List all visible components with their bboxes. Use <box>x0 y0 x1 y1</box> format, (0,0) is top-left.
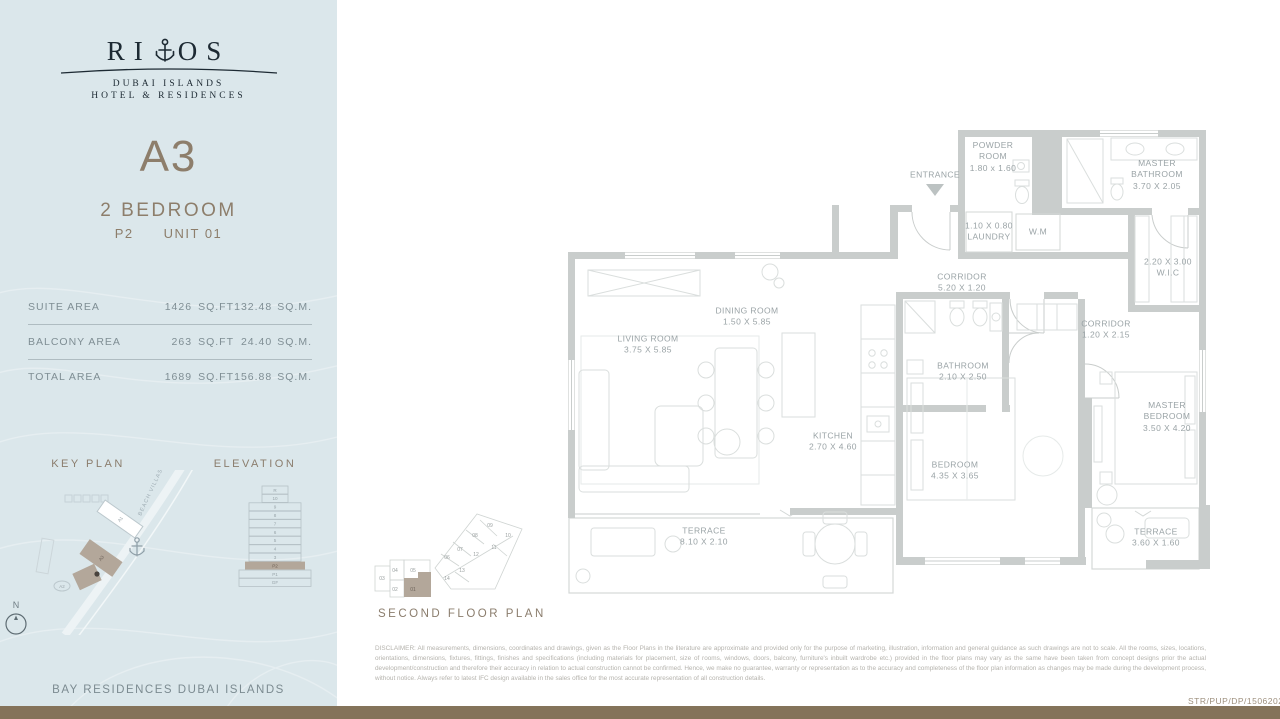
unit-location: P2 UNIT 01 <box>0 226 337 241</box>
brand-tagline-2: HOTEL & RESIDENCES <box>0 91 337 101</box>
mini-unit-label: 08 <box>472 533 478 539</box>
mini-unit-label: 03 <box>379 576 385 582</box>
elevation-floor-label: 8 <box>274 513 277 518</box>
mini-unit-label: 04 <box>392 568 398 574</box>
elevation-floor-label: 6 <box>274 530 277 535</box>
bathroom-fixtures <box>905 301 1002 333</box>
mini-unit-label: 10 <box>505 533 511 539</box>
area-sqft-unit: SQ.FT <box>198 336 234 348</box>
elevation-floor-label: P1 <box>272 572 278 577</box>
mini-unit-label: 01 <box>410 587 416 593</box>
wordmark-right: OS <box>178 36 231 67</box>
floor-plan: ENTRANCE POWDER ROOM 1.80 x 1.60 MASTER … <box>555 120 1215 610</box>
room-label-dining-room: DINING ROOM 1.50 X 5.85 <box>716 306 779 329</box>
unit-type: 2 BEDROOM <box>0 200 337 222</box>
elevation-floor-label: 10 <box>272 496 278 501</box>
area-sqm-value: 156.88 <box>234 371 272 383</box>
mini-unit-label: 05 <box>410 568 416 574</box>
key-plan-building-a3-highlighted: A3 <box>72 539 122 590</box>
area-sqm-unit: SQ.M. <box>277 371 312 383</box>
room-label-master-bathroom: MASTER BATHROOM 3.70 X 2.05 <box>1120 158 1194 192</box>
unit-number: UNIT 01 <box>164 226 223 241</box>
room-label-wm: W.M <box>1029 226 1047 237</box>
area-row-total: TOTAL AREA 1689SQ.FT 156.88SQ.M. <box>28 359 312 394</box>
mini-unit-label: 09 <box>487 523 493 529</box>
area-row-suite: SUITE AREA 1426SQ.FT 132.48SQ.M. <box>28 290 312 324</box>
dining-room-furniture <box>698 333 815 458</box>
room-label-terrace-master: TERRACE 3.60 X 1.60 <box>1132 527 1180 550</box>
elevation-floor-label: 3 <box>274 555 277 560</box>
key-plan-building-other <box>36 538 54 574</box>
area-sqft-unit: SQ.FT <box>198 371 234 383</box>
elevation-floor-label: GF <box>272 580 279 585</box>
logo-swoosh-line <box>59 67 279 75</box>
elevation-floor-label: 9 <box>274 505 277 510</box>
terrace-outlines <box>569 508 1199 593</box>
mini-unit-label: 12 <box>473 552 479 558</box>
elevation-title: ELEVATION <box>185 458 325 470</box>
room-label-bedroom: BEDROOM 4.35 X 3.65 <box>931 460 979 483</box>
master-bedroom-furniture <box>1094 372 1197 505</box>
mini-unit-label: 14 <box>444 576 450 582</box>
room-label-living-room: LIVING ROOM 3.75 X 5.85 <box>617 334 678 357</box>
area-sqm-unit: SQ.M. <box>277 301 312 313</box>
area-sqm-unit: SQ.M. <box>277 336 312 348</box>
mini-unit-label: 07 <box>457 547 463 553</box>
room-label-kitchen: KITCHEN 2.70 X 4.60 <box>809 431 857 454</box>
elevation-floor-label: R <box>273 488 277 493</box>
elevation-floor-label: 7 <box>274 521 277 526</box>
elevation-floor-label: 4 <box>274 547 277 552</box>
reference-code: STR/PUP/DP/15062023 <box>1188 696 1280 706</box>
building-a2-label: A2 <box>59 584 65 589</box>
mini-floor-plan: 01 02 03 04 05 06 07 08 09 10 11 12 13 1… <box>373 492 528 602</box>
mini-plan-highlighted-unit <box>404 572 431 597</box>
area-sqm-value: 132.48 <box>234 301 272 313</box>
beach-villas-row <box>65 495 108 502</box>
unit-location-dot <box>94 571 99 576</box>
area-sqft-unit: SQ.FT <box>198 301 234 313</box>
room-label-laundry: 1.10 X 0.80 LAUNDRY <box>965 221 1013 244</box>
brand-wordmark: RI OS <box>0 36 337 67</box>
brand-logo: RI OS DUBAI ISLANDS HOTEL & RESI <box>0 36 337 101</box>
mini-unit-label: 02 <box>392 587 398 593</box>
area-label: TOTAL AREA <box>28 371 148 383</box>
mini-plan-caption: SECOND FLOOR PLAN <box>378 608 546 620</box>
room-label-corridor-master: CORRIDOR 1.20 X 2.15 <box>1081 319 1130 342</box>
room-label-bathroom: BATHROOM 2.10 X 2.50 <box>937 361 989 384</box>
room-label-master-bedroom: MASTER BEDROOM 3.50 X 4.20 <box>1130 400 1204 434</box>
elevation-floor-label-highlighted: P2 <box>272 563 278 568</box>
sidebar: RI OS DUBAI ISLANDS HOTEL & RESI <box>0 0 337 706</box>
terrace-main-furniture <box>576 512 867 588</box>
mini-unit-label: 13 <box>459 568 465 574</box>
project-name: BAY RESIDENCES DUBAI ISLANDS <box>0 684 337 696</box>
north-label: N <box>7 600 25 610</box>
elevation-floor-label: 5 <box>274 538 277 543</box>
room-label-terrace-main: TERRACE 8.10 X 2.10 <box>680 526 728 549</box>
key-plan-title: KEY PLAN <box>18 458 158 470</box>
unit-code: A3 <box>0 132 337 182</box>
north-compass-icon <box>3 611 29 637</box>
area-label: SUITE AREA <box>28 301 148 313</box>
entrance-label: ENTRANCE <box>910 169 960 180</box>
area-sqm-value: 24.40 <box>241 336 272 348</box>
bottom-brown-bar <box>0 706 1280 719</box>
area-sqft-value: 263 <box>172 336 193 348</box>
entrance-arrow-icon <box>926 184 944 196</box>
floor-plan-drawing <box>555 120 1215 610</box>
area-sqft-value: 1426 <box>165 301 192 313</box>
disclaimer-text: DISCLAIMER: All measurements, dimensions… <box>375 644 1206 684</box>
area-label: BALCONY AREA <box>28 336 148 348</box>
kitchen-furniture <box>861 305 895 505</box>
mini-unit-label: 06 <box>444 555 450 561</box>
mini-unit-label: 11 <box>491 545 496 551</box>
key-plan-building-a1: A1 <box>97 500 143 538</box>
area-sqft-value: 1689 <box>165 371 192 383</box>
area-row-balcony: BALCONY AREA 263SQ.FT 24.40SQ.M. <box>28 324 312 359</box>
room-label-corridor-main: CORRIDOR 5.20 X 1.20 <box>937 272 986 295</box>
unit-level: P2 <box>115 226 134 241</box>
brand-tagline-1: DUBAI ISLANDS <box>0 79 337 89</box>
key-plan-building-a2: A2 <box>54 581 70 591</box>
floorplan-brochure-page: RI OS DUBAI ISLANDS HOTEL & RESI <box>0 0 1280 719</box>
wordmark-left: RI <box>107 36 152 67</box>
anchor-icon <box>154 38 176 66</box>
area-table: SUITE AREA 1426SQ.FT 132.48SQ.M. BALCONY… <box>28 290 312 394</box>
room-label-wic: 2.20 X 3.00 W.I.C <box>1144 257 1192 280</box>
elevation-drawing: R 10 9 8 7 6 5 4 3 P2 P1 GF <box>215 480 330 592</box>
room-label-powder-room: POWDER ROOM 1.80 x 1.60 <box>965 140 1021 174</box>
